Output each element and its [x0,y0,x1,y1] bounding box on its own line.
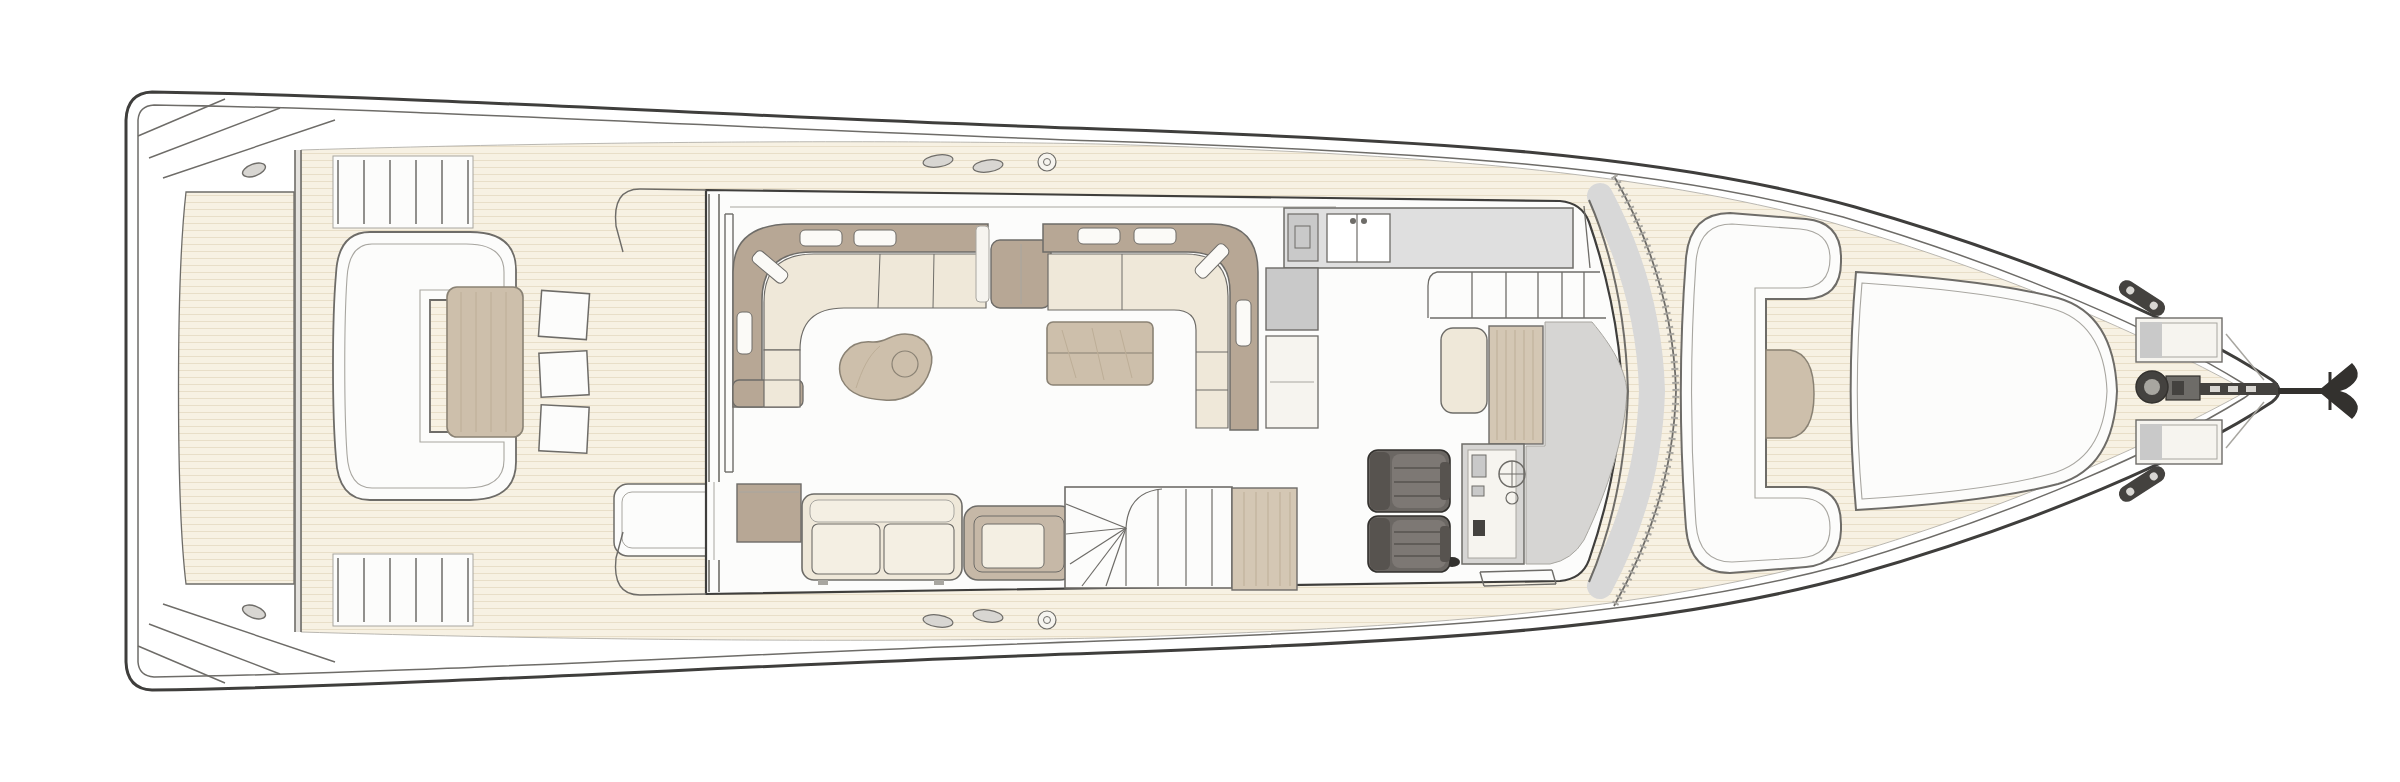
bow-sunpad [1851,272,2117,510]
starboard-sofa [802,494,962,585]
swim-platform-teak [179,192,295,584]
faucet [1361,218,1367,224]
helm-seat-starboard [1368,516,1450,572]
lumbar-pillow [737,312,752,354]
helm-seat-port [1368,450,1450,512]
lumbar-pillow [1236,300,1251,346]
foredeck-table [1766,350,1814,438]
joinery-block [1232,488,1297,590]
galley-sink [1327,214,1390,262]
stool-1 [538,290,589,339]
swim-platform [179,150,302,632]
stool-3 [539,405,589,453]
dining-table [1047,322,1153,385]
lumbar-pillow [1078,228,1120,244]
deck-filler-cap [1038,611,1056,629]
cooktop [1288,214,1318,261]
yacht-deck-plan: Motor yacht main deck floor plan — overh… [0,0,2400,782]
deck-plan-svg: Motor yacht main deck floor plan — overh… [0,0,2400,782]
companion-bench [1441,328,1487,413]
anchor [2278,363,2358,419]
armchair [964,506,1074,580]
lumbar-pillow [1134,228,1176,244]
anchor-chain [2200,383,2278,395]
curved-stairs [1065,487,1232,588]
transom-steps-port [333,156,473,228]
console-wood-panel [1489,326,1543,444]
refrigerator [1266,268,1318,330]
stool-2 [539,351,589,397]
lumbar-pillow [854,230,896,246]
windlass [2136,371,2200,403]
deck-filler-cap [1038,153,1056,171]
sideboard [737,484,801,542]
side-cabinet [991,240,1051,308]
sofa-arm-cushion [764,350,800,407]
sofa-end-arm [976,226,989,302]
transom-wall [295,150,301,632]
bow-hardware [2116,277,2358,505]
lumbar-pillow [800,230,842,246]
transom-steps-starboard [333,554,473,626]
faucet [1350,218,1356,224]
cockpit-table [447,287,523,437]
